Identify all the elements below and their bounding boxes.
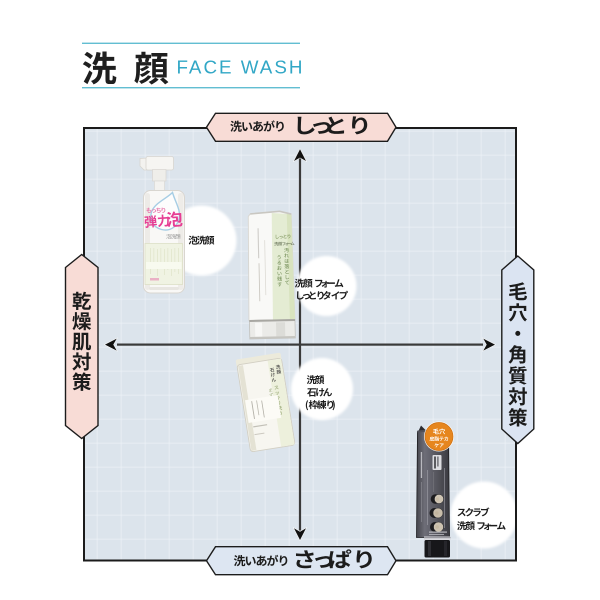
svg-text:FACE WASH: FACE WASH: [177, 57, 305, 78]
